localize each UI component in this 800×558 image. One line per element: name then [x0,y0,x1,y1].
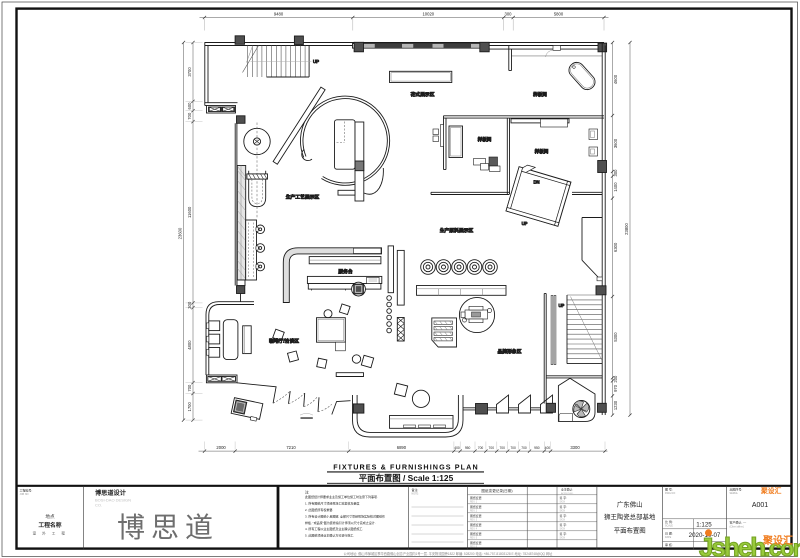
svg-text:4. 所有工程以业主图纸及业主确认图纸施工.: 4. 所有工程以业主图纸及业主确认图纸施工. [305,526,363,531]
svg-text:服务台: 服务台 [338,268,353,275]
svg-text:A001: A001 [752,502,768,509]
svg-text:REV. 5: REV. 5 [470,537,478,539]
svg-text:4800: 4800 [187,340,192,350]
svg-text:700: 700 [187,112,192,120]
svg-text:SIGN: SIGN [560,510,566,512]
svg-text:5300: 5300 [613,332,618,342]
svg-text:签 字:: 签 字: [560,531,568,536]
svg-text:聚设汇: 聚设汇 [762,534,793,547]
svg-text:5. 此图纸须经业主确认方可进行施工.: 5. 此图纸须经业主确认方可进行施工. [305,533,354,538]
svg-text:10020: 10020 [422,12,434,17]
svg-text:Jsheh: Jsheh [699,532,765,558]
svg-text:SIGN: SIGN [560,537,566,539]
svg-text:700: 700 [510,446,516,450]
svg-text:出图序号:: 出图序号: [730,487,743,492]
svg-text:咖啡厅/洽谈区: 咖啡厅/洽谈区 [269,337,299,344]
svg-text:REV. 1: REV. 1 [470,501,478,503]
svg-text:图纸变更: 图纸变更 [470,531,482,536]
svg-text:签 字:: 签 字: [560,495,568,500]
svg-text:950: 950 [534,446,540,450]
svg-text:200: 200 [613,375,618,383]
svg-text:生产原料展示区: 生产原料展示区 [440,227,474,234]
svg-text:23800: 23800 [624,223,629,235]
svg-text:3300: 3300 [570,445,580,450]
svg-text:样板间: 样板间 [478,136,492,143]
svg-text:2. 此图纸所有权重要.: 2. 此图纸所有权重要. [305,507,333,512]
svg-text:CO.: CO. [95,503,102,508]
svg-text:JOB NO:: JOB NO: [20,493,30,496]
svg-text:SIGN: SIGN [560,519,566,521]
svg-text:DATE: DATE [665,536,672,539]
svg-text:备注:: 备注: [412,487,419,492]
svg-text:DN: DN [533,180,539,185]
svg-text:SCALE: SCALE [665,525,673,528]
svg-text:SERIAL: SERIAL [730,492,739,495]
svg-text:REV. 6: REV. 6 [470,546,478,548]
svg-text:400: 400 [545,446,551,450]
svg-text:地点: 地点 [45,513,55,520]
svg-text:REV. 3: REV. 3 [470,519,478,521]
svg-text:平面布置图 / Scale 1:125: 平面布置图 / Scale 1:125 [359,473,454,483]
svg-text:样板间: 样板间 [533,91,547,98]
svg-text:5800: 5800 [554,12,564,17]
svg-text:样板间: 样板间 [535,148,549,155]
svg-text:图纸变更: 图纸变更 [470,495,482,500]
svg-text:9480: 9480 [274,12,284,17]
svg-text:950: 950 [465,446,471,450]
svg-text:(Client affirm): (Client affirm) [730,526,745,529]
svg-text:FIXTURES & FURNISHINGS PLAN: FIXTURES & FURNISHINGS PLAN [333,462,479,471]
svg-text:970: 970 [613,384,618,392]
svg-text:业主确认:: 业主确认: [561,488,573,492]
svg-text:1400: 1400 [613,182,618,192]
svg-text:SIGN: SIGN [560,528,566,530]
svg-text:300: 300 [187,301,192,309]
svg-text:REV. 2: REV. 2 [470,510,478,512]
svg-text:签 字:: 签 字: [560,504,568,509]
svg-text:图纸变更记录(日期): 图纸变更记录(日期) [481,488,512,493]
svg-text:7210: 7210 [286,445,296,450]
svg-text:品牌形象区: 品牌形象区 [498,348,522,355]
svg-text:1700: 1700 [187,401,192,411]
svg-text:生产工艺展示区: 生产工艺展示区 [286,194,320,201]
svg-text:700: 700 [478,446,484,450]
svg-text:1:125: 1:125 [696,522,712,529]
svg-text:300: 300 [613,169,618,177]
svg-text:注:: 注: [305,490,309,495]
svg-text:平面布置图: 平面布置图 [614,526,646,535]
svg-text:博思道设计: 博思道设计 [95,489,127,497]
svg-text:700: 700 [499,446,505,450]
svg-text:图纸变更: 图纸变更 [470,513,482,518]
svg-text:签 字:: 签 字: [560,513,568,518]
svg-text:300: 300 [505,12,513,17]
svg-text:UP: UP [522,221,528,226]
svg-text:3. 所有设计图纸小且图解, 全部尺寸须经现场实际核对图纸作: 3. 所有设计图纸小且图解, 全部尺寸须经现场实际核对图纸作 [305,513,385,518]
svg-text:签 字:: 签 字: [560,522,568,527]
svg-text:DWG NO:: DWG NO: [665,492,676,495]
svg-text:样板, "成品家"图为装修指引计师须以尺寸完成之设计.: 样板, "成品家"图为装修指引计师须以尺寸完成之设计. [305,520,376,525]
svg-text:公司地址: 佛山市禅城区季华西路佛山创意产业园内1号一层.: 公司地址: 佛山市禅城区季华西路佛山创意产业园内1号一层. 平安物流园旁1822… [344,551,553,556]
svg-text:2000: 2000 [216,445,226,450]
svg-text:REV. 4: REV. 4 [470,528,478,530]
svg-text:700: 700 [521,446,527,450]
svg-text:6890: 6890 [397,445,407,450]
svg-text:UP: UP [313,59,319,64]
svg-text:此图纸经计师要求业主及施工单位施工时注意下列事项.: 此图纸经计师要求业主及施工单位施工时注意下列事项. [305,494,378,499]
svg-text:UP: UP [559,303,565,308]
svg-text:1230: 1230 [613,400,618,410]
svg-text:工程名称: 工程名称 [38,521,61,529]
svg-text:700: 700 [187,384,192,392]
svg-text:4600: 4600 [613,74,618,84]
svg-text:3600: 3600 [613,138,618,148]
svg-text:日 期:: 日 期: [665,531,673,536]
svg-text:广东佛山: 广东佛山 [617,500,643,509]
svg-text:审 核:: 审 核: [665,542,673,547]
svg-text:比 例:: 比 例: [665,519,673,524]
svg-text:NOTE:: NOTE: [412,493,420,496]
svg-text:APPROVED: APPROVED [561,492,574,495]
svg-text:23600: 23600 [178,227,183,239]
svg-text:SIGN: SIGN [560,501,566,503]
svg-text:聚设汇: 聚设汇 [760,486,782,495]
svg-text:花式展示区: 花式展示区 [411,91,435,98]
svg-text:3700: 3700 [187,67,192,77]
svg-text:工程编号:: 工程编号: [20,488,33,493]
svg-text:图纸变更: 图纸变更 [470,504,482,509]
svg-text:600: 600 [187,102,192,110]
svg-text:狮王陶瓷总部基地: 狮王陶瓷总部基地 [604,512,656,521]
svg-text:1. 所有图纸尺寸须经现场工地复核及量度.: 1. 所有图纸尺寸须经现场工地复核及量度. [305,501,360,506]
svg-text:图 号:: 图 号: [665,487,673,492]
svg-text:图纸变更: 图纸变更 [470,540,482,545]
svg-text:400: 400 [454,446,460,450]
svg-text:700: 700 [489,446,495,450]
svg-text:室 外 工 程: 室 外 工 程 [33,531,68,536]
svg-text:客户确认: —: 客户确认: — [730,520,747,525]
svg-text:图纸变更: 图纸变更 [470,522,482,527]
svg-text:11600: 11600 [187,206,192,218]
svg-text:博思道: 博思道 [117,512,219,543]
svg-text:6300: 6300 [613,242,618,252]
